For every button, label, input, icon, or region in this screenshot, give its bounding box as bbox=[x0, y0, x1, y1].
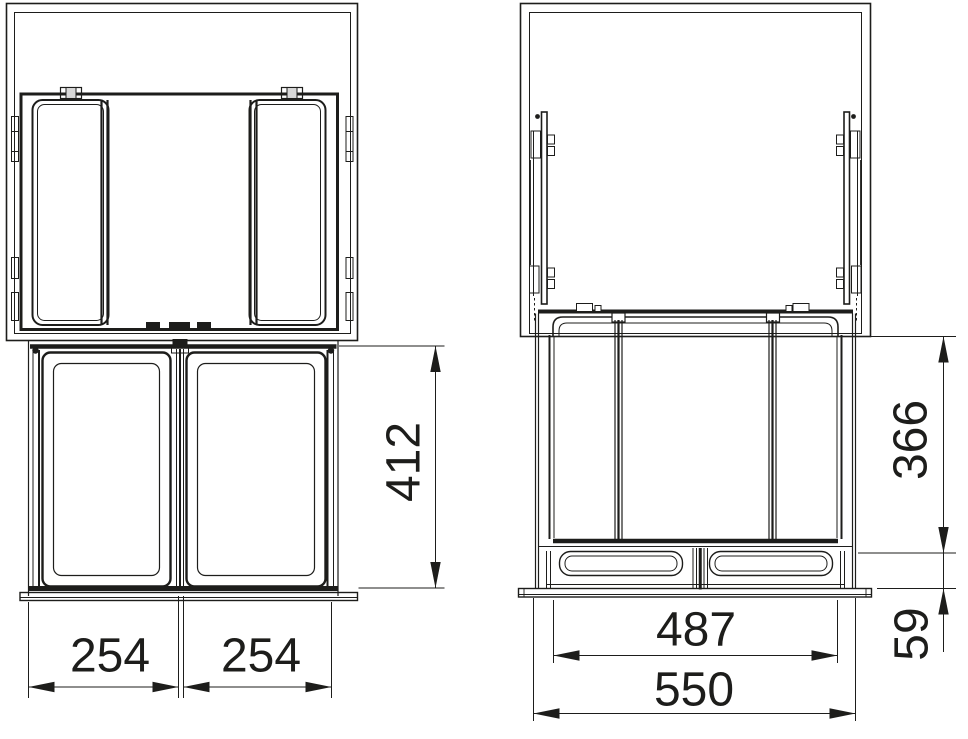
plan-left-bin bbox=[33, 100, 109, 325]
dim-front-height-label: 412 bbox=[378, 422, 431, 502]
side-view bbox=[519, 4, 872, 598]
side-left-rail bbox=[530, 112, 555, 323]
front-base-plate bbox=[20, 593, 358, 601]
technical-drawing-canvas: 412 254 254 bbox=[0, 0, 968, 739]
front-view bbox=[20, 339, 358, 601]
dim-overall-width-label: 550 bbox=[654, 664, 734, 717]
side-bin-walls bbox=[550, 320, 842, 539]
side-runner-section bbox=[547, 548, 845, 590]
plan-right-bin bbox=[250, 100, 326, 325]
plan-view bbox=[7, 4, 358, 341]
front-right-bin bbox=[187, 353, 326, 587]
side-cabinet-inner-outline bbox=[530, 13, 862, 334]
drawing-sheet: 412 254 254 bbox=[0, 0, 968, 739]
front-view-dimensions: 412 254 254 bbox=[29, 346, 445, 698]
side-right-rail bbox=[837, 112, 862, 323]
dim-runner-width-label: 487 bbox=[656, 604, 736, 657]
dim-left-bin-width-label: 254 bbox=[70, 630, 150, 683]
plan-pullout-frame bbox=[21, 94, 338, 330]
front-left-channel bbox=[29, 341, 40, 596]
side-cabinet-outer-outline bbox=[521, 4, 871, 337]
dim-base-section-height-label: 59 bbox=[886, 607, 939, 660]
front-right-channel bbox=[328, 341, 339, 596]
side-base-plate bbox=[519, 589, 872, 598]
plan-cabinet-inner-outline bbox=[15, 13, 351, 334]
side-view-dimensions: 366 59 487 550 bbox=[534, 337, 957, 722]
dim-right-bin-width-label: 254 bbox=[221, 630, 301, 683]
plan-right-clips bbox=[346, 117, 353, 321]
front-left-bin bbox=[43, 353, 171, 587]
plan-front-edge-slots bbox=[146, 322, 211, 329]
dim-bin-section-height-label: 366 bbox=[885, 400, 938, 480]
plan-cabinet-outer-outline bbox=[7, 4, 358, 341]
